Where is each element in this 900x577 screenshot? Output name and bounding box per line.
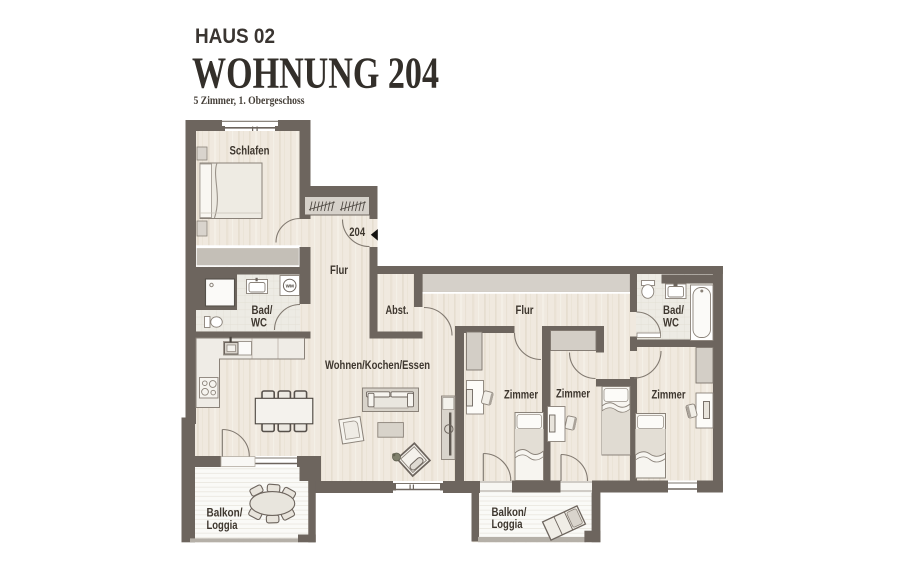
svg-text:Flur: Flur — [516, 303, 534, 317]
svg-text:5 Zimmer, 1. Obergeschoss: 5 Zimmer, 1. Obergeschoss — [194, 93, 305, 107]
svg-text:HAUS 02: HAUS 02 — [195, 25, 275, 48]
svg-text:Schlafen: Schlafen — [230, 144, 270, 158]
svg-text:WM: WM — [286, 283, 294, 288]
svg-text:Loggia: Loggia — [492, 517, 523, 531]
svg-text:WOHNUNG 204: WOHNUNG 204 — [192, 49, 439, 98]
svg-text:Abst.: Abst. — [386, 303, 409, 317]
svg-text:Wohnen/Kochen/Essen: Wohnen/Kochen/Essen — [325, 358, 430, 372]
svg-text:204: 204 — [349, 225, 365, 239]
svg-text:WC: WC — [663, 316, 679, 330]
svg-text:Zimmer: Zimmer — [652, 388, 686, 402]
svg-text:Zimmer: Zimmer — [556, 386, 590, 400]
svg-text:Loggia: Loggia — [207, 518, 238, 532]
svg-text:Flur: Flur — [330, 263, 348, 277]
svg-text:WC: WC — [251, 316, 267, 330]
svg-text:Zimmer: Zimmer — [504, 388, 538, 402]
